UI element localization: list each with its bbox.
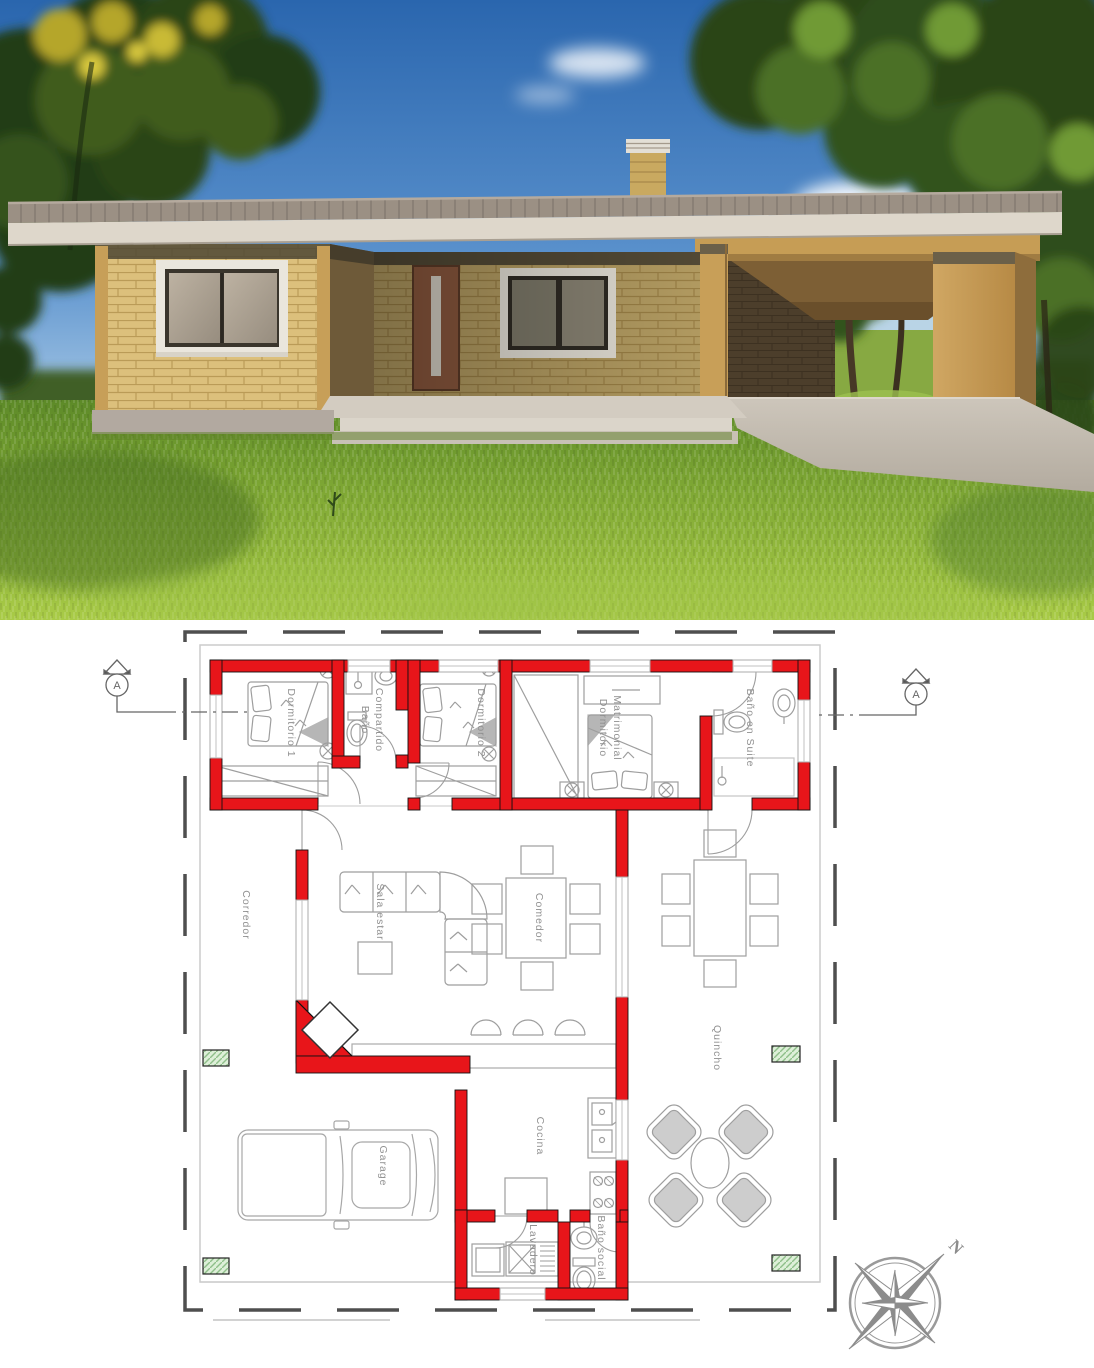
exterior-render-svg bbox=[0, 0, 1094, 620]
carport-soffit-deep bbox=[790, 302, 952, 320]
porch-column bbox=[700, 244, 728, 400]
room-label-bano-line1: Baño bbox=[359, 706, 371, 735]
column-marker bbox=[772, 1255, 800, 1271]
washer-icon bbox=[472, 1244, 504, 1276]
chimney bbox=[626, 139, 670, 196]
car-icon bbox=[238, 1121, 438, 1229]
door-arc-matrimonial bbox=[708, 810, 752, 854]
bar-stools-icon bbox=[471, 1020, 585, 1035]
coffee-table-icon bbox=[358, 942, 392, 974]
closet-icon bbox=[514, 675, 578, 798]
sofa-icon bbox=[340, 872, 487, 985]
carport-column bbox=[933, 252, 1015, 415]
room-label-sala-estar: Sala estar bbox=[374, 883, 386, 940]
compass-rose: N bbox=[849, 1236, 968, 1349]
column-marker bbox=[203, 1050, 229, 1066]
column-marker bbox=[203, 1258, 229, 1274]
room-label-cocina: Cocina bbox=[534, 1117, 546, 1156]
column-markers bbox=[203, 1046, 800, 1274]
carport-column-side bbox=[1015, 252, 1036, 415]
column-marker bbox=[772, 1046, 800, 1062]
room-label-comedor: Comedor bbox=[533, 893, 545, 943]
door-arc-entrance bbox=[302, 810, 342, 850]
foundation bbox=[92, 410, 334, 434]
section-label-right: A bbox=[912, 689, 920, 701]
closet-icon bbox=[216, 766, 328, 796]
room-label-bano-social: Baño social bbox=[595, 1215, 607, 1280]
step-upper bbox=[340, 418, 732, 431]
fridge-icon bbox=[505, 1178, 547, 1214]
room-label-matrimonial-line1: Dormitorio bbox=[597, 699, 609, 757]
nightstand-icon bbox=[560, 782, 584, 798]
right-pilaster bbox=[317, 246, 330, 412]
closet-icon bbox=[416, 766, 496, 796]
left-pilaster bbox=[95, 246, 108, 412]
floor-plan-svg: Dormitorio 1 Baño Compartido Dormitorio … bbox=[0, 620, 1094, 1368]
porch-floor bbox=[316, 396, 747, 418]
room-label-garage: Garage bbox=[377, 1145, 389, 1186]
room-label-matrimonial-line2: Matrimonial bbox=[611, 695, 623, 760]
page: Dormitorio 1 Baño Compartido Dormitorio … bbox=[0, 0, 1094, 1368]
stove-icon bbox=[590, 1172, 616, 1214]
grass-shadow bbox=[92, 432, 732, 440]
floor-plan: Dormitorio 1 Baño Compartido Dormitorio … bbox=[0, 620, 1094, 1368]
room-label-dormitorio-2: Dormitorio 2 bbox=[475, 688, 487, 757]
left-wall bbox=[95, 244, 330, 412]
nightstand-icon bbox=[654, 782, 678, 798]
quincho-table-icon bbox=[662, 830, 778, 987]
porch-wall bbox=[374, 252, 700, 400]
window-glass-right bbox=[224, 273, 277, 343]
room-label-quincho: Quincho bbox=[711, 1025, 723, 1071]
room-label-bano-en-suite: Baño en Suite bbox=[744, 689, 756, 768]
kitchen-sink-icon bbox=[588, 1098, 620, 1158]
door-arc-lavadero bbox=[495, 1216, 527, 1248]
porch-column-cap bbox=[700, 244, 728, 254]
section-label-left: A bbox=[113, 680, 121, 692]
room-label-corredor: Corredor bbox=[240, 890, 252, 939]
porch-return-wall bbox=[330, 244, 374, 412]
left-wall-dark-band bbox=[95, 244, 330, 259]
window-sill bbox=[156, 352, 288, 357]
exterior-render bbox=[0, 0, 1094, 620]
section-marker-right: A bbox=[815, 669, 929, 715]
room-label-lavadero: Lavadero bbox=[527, 1224, 539, 1276]
room-label-dormitorio-1: Dormitorio 1 bbox=[285, 688, 297, 757]
round-table-icon bbox=[643, 1101, 777, 1231]
window-glass-left bbox=[169, 273, 220, 343]
carport-column-cap bbox=[933, 252, 1015, 264]
sink-icon bbox=[773, 689, 795, 724]
north-label: N bbox=[945, 1236, 968, 1259]
room-label-bano-line2: Compartido bbox=[373, 688, 385, 752]
